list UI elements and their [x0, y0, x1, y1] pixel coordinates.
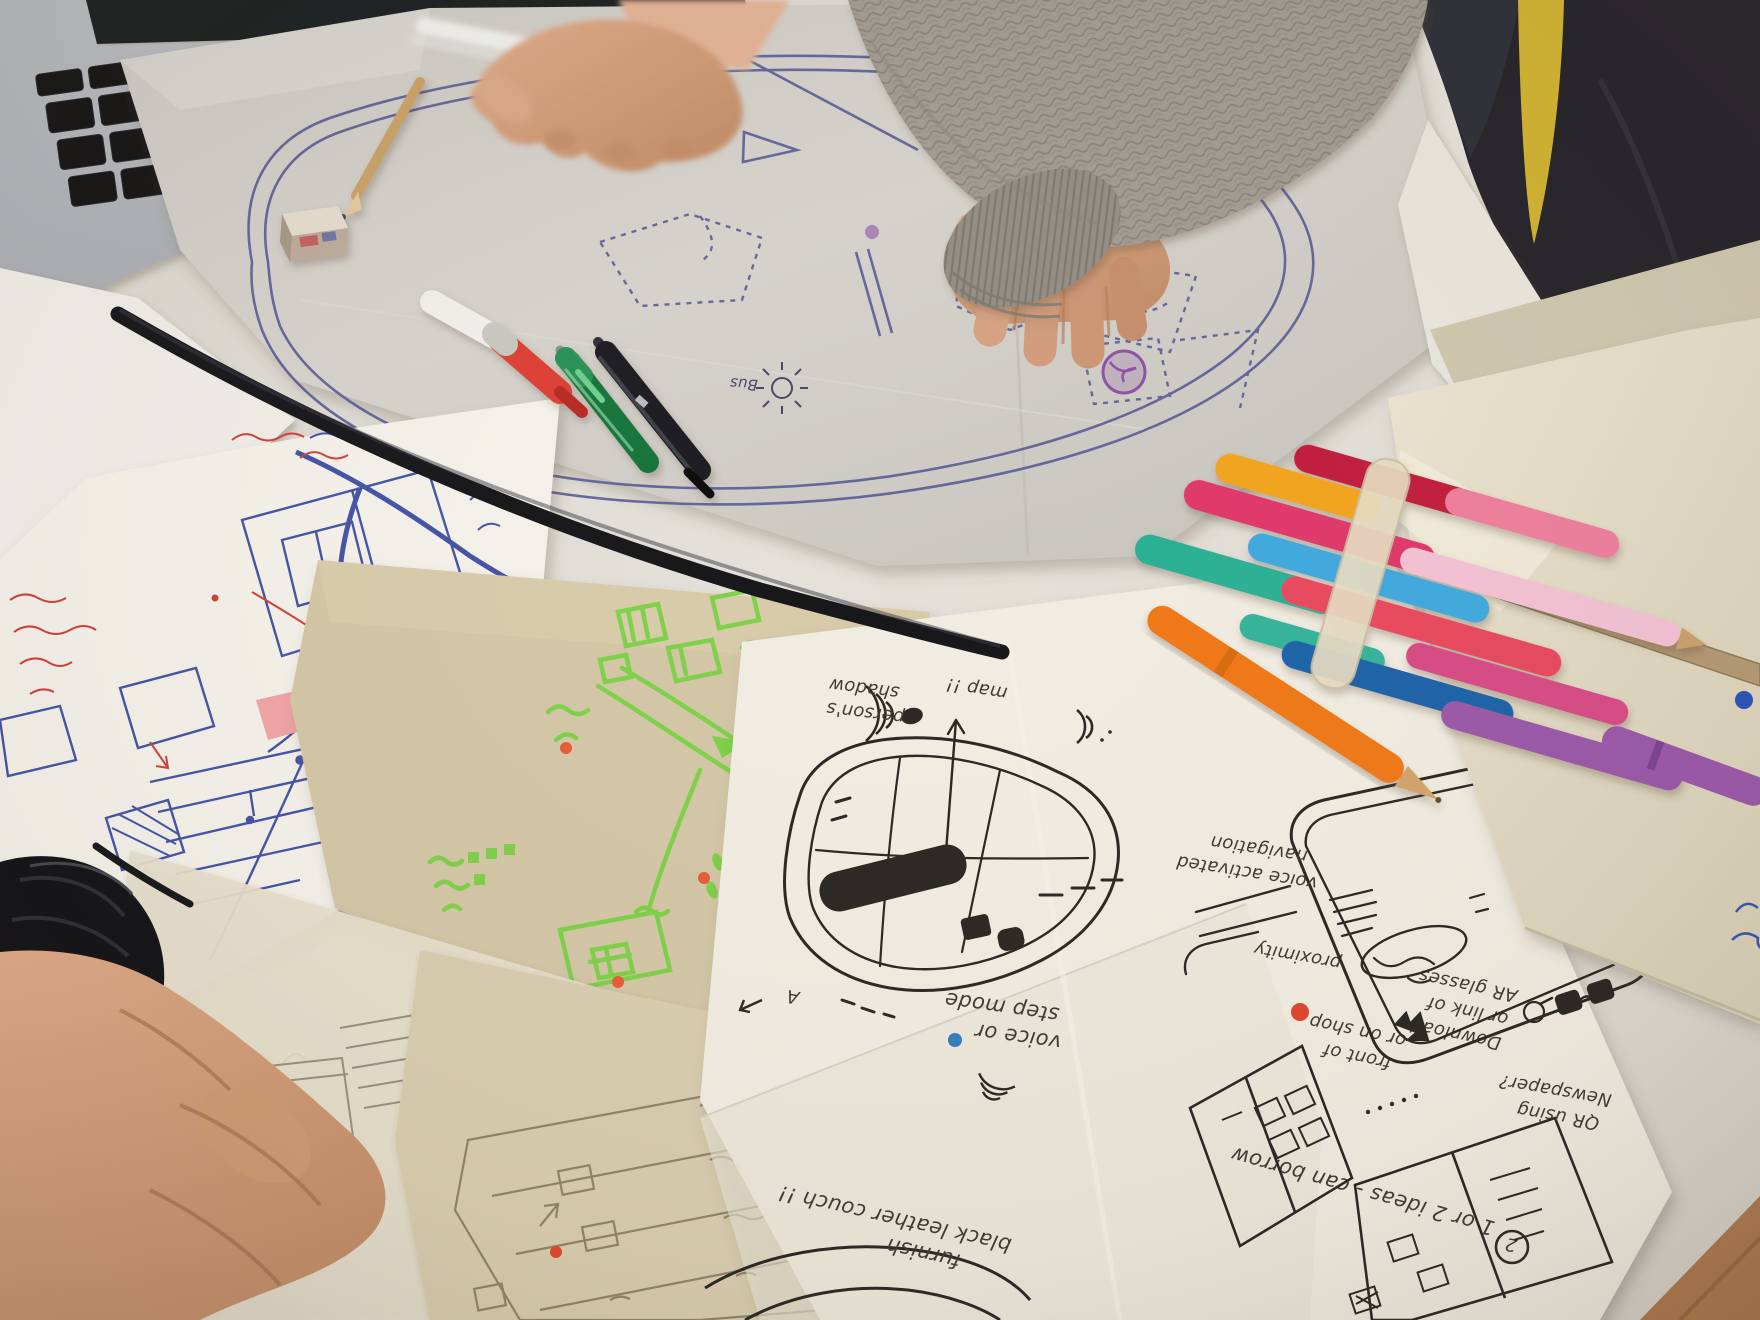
- vignette-overlay: [0, 0, 1760, 1320]
- workshop-photo: Bus: [0, 0, 1760, 1320]
